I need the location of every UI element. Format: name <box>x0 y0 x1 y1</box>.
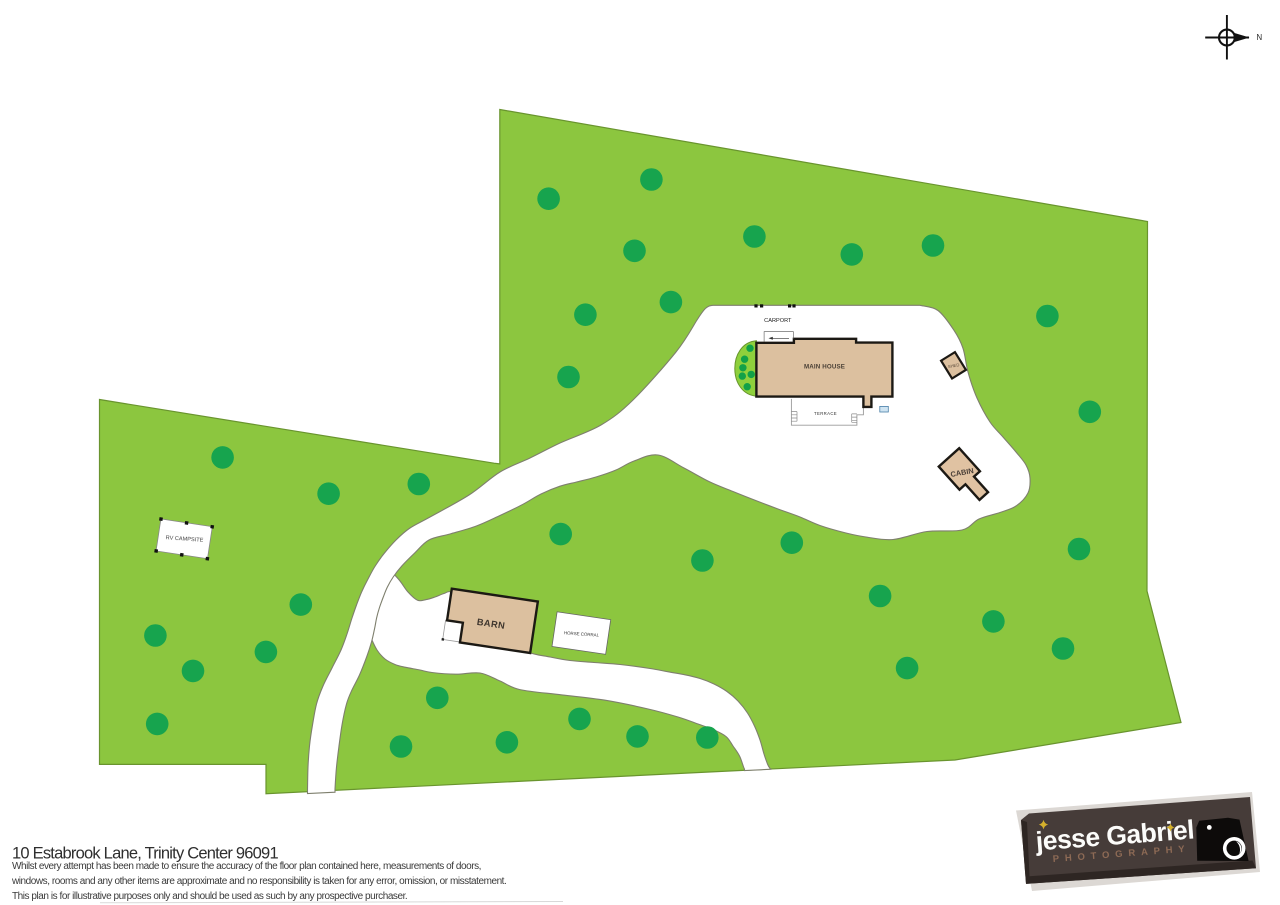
svg-text:10 Estabrook Lane, Trinity Cen: 10 Estabrook Lane, Trinity Center 96091 <box>12 845 278 863</box>
svg-text:Whilst every attempt has been: Whilst every attempt has been made to en… <box>12 861 481 872</box>
svg-text:CARPORT: CARPORT <box>764 318 792 324</box>
svg-text:MAIN HOUSE: MAIN HOUSE <box>804 363 845 370</box>
svg-text:This plan is for illustrative: This plan is for illustrative purposes o… <box>12 891 407 902</box>
svg-text:windows, rooms and any other i: windows, rooms and any other items are a… <box>11 876 506 887</box>
svg-text:N: N <box>1257 33 1263 42</box>
svg-text:TERRACE: TERRACE <box>814 411 837 416</box>
